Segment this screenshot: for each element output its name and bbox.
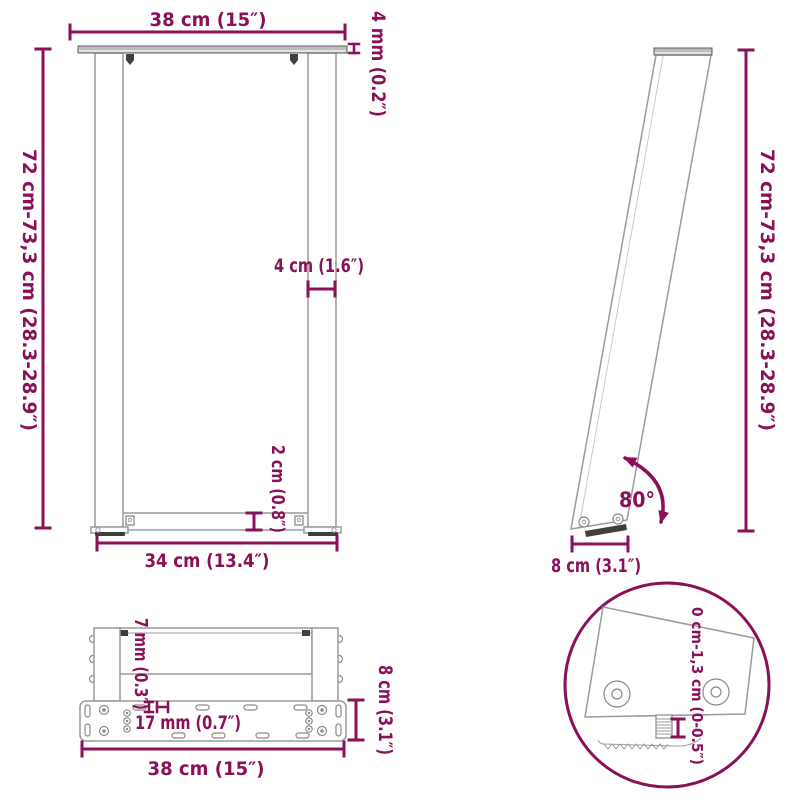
label-side-angle: 80° bbox=[619, 488, 655, 512]
label-front-crossbar: 2 cm (0.8″) bbox=[267, 445, 288, 533]
label-front-plate-thickness: 4 mm (0.2″) bbox=[367, 11, 389, 117]
front-view-diagram: 38 cm (15″) 4 mm (0.2″) 72 cm-73,3 cm (2… bbox=[18, 9, 389, 572]
label-detail-adjust-range: 0 cm-1,3 cm (0-0.5″) bbox=[688, 607, 706, 765]
dim-side-height: 72 cm-73,3 cm (28.3-28.9″) bbox=[739, 50, 778, 531]
label-front-top-width: 38 cm (15″) bbox=[150, 9, 267, 31]
front-screw-right bbox=[290, 54, 298, 65]
dim-front-plate-thickness: 4 mm (0.2″) bbox=[349, 11, 389, 117]
detail-view-diagram: 0 cm-1,3 cm (0-0.5″) bbox=[565, 583, 769, 787]
dim-side-foot-depth: 8 cm (3.1″) bbox=[551, 537, 641, 577]
side-top-plate bbox=[654, 48, 712, 55]
label-front-bottom-width: 34 cm (13.4″) bbox=[145, 550, 270, 572]
side-view-diagram: 80° 8 cm (3.1″) 72 cm-73,3 cm (28.3-28.9… bbox=[551, 48, 778, 577]
dim-front-leg-width: 4 cm (1.6″) bbox=[274, 255, 364, 296]
front-right-foot bbox=[304, 527, 341, 536]
dim-bottom-plate-width: 38 cm (15″) bbox=[82, 742, 344, 780]
label-bottom-plate-width: 38 cm (15″) bbox=[148, 758, 265, 780]
dim-front-crossbar: 2 cm (0.8″) bbox=[247, 445, 288, 533]
label-bottom-plate-depth: 8 cm (3.1″) bbox=[374, 665, 396, 755]
dimension-diagram-canvas: 38 cm (15″) 4 mm (0.2″) 72 cm-73,3 cm (2… bbox=[0, 0, 800, 800]
label-bottom-bar-thickness: 7 mm (0.3″) bbox=[130, 618, 151, 710]
label-front-leg-width: 4 cm (1.6″) bbox=[274, 255, 364, 277]
bottom-left-leg bbox=[90, 628, 121, 701]
dim-bottom-plate-depth: 8 cm (3.1″) bbox=[349, 665, 396, 755]
dim-front-height: 72 cm-73,3 cm (28.3-28.9″) bbox=[18, 49, 50, 528]
bottom-view-diagram: 7 mm (0.3″) 17 mm (0.7″) 8 cm (3.1″) 38 … bbox=[80, 618, 396, 780]
front-top-plate bbox=[78, 46, 347, 53]
label-bottom-hole-pitch: 17 mm (0.7″) bbox=[135, 712, 241, 734]
dim-front-top-width: 38 cm (15″) bbox=[70, 9, 345, 39]
label-side-foot-depth: 8 cm (3.1″) bbox=[551, 555, 641, 577]
dim-bottom-bar-thickness: 7 mm (0.3″) bbox=[130, 618, 153, 712]
front-left-leg bbox=[95, 53, 123, 527]
side-leg bbox=[571, 55, 711, 529]
diagram-svg: 38 cm (15″) 4 mm (0.2″) 72 cm-73,3 cm (2… bbox=[0, 0, 800, 800]
dim-front-bottom-width: 34 cm (13.4″) bbox=[97, 536, 337, 572]
bottom-right-leg bbox=[312, 628, 343, 701]
label-front-height: 72 cm-73,3 cm (28.3-28.9″) bbox=[18, 149, 40, 431]
label-side-height: 72 cm-73,3 cm (28.3-28.9″) bbox=[756, 149, 778, 431]
front-screw-left bbox=[126, 54, 134, 65]
